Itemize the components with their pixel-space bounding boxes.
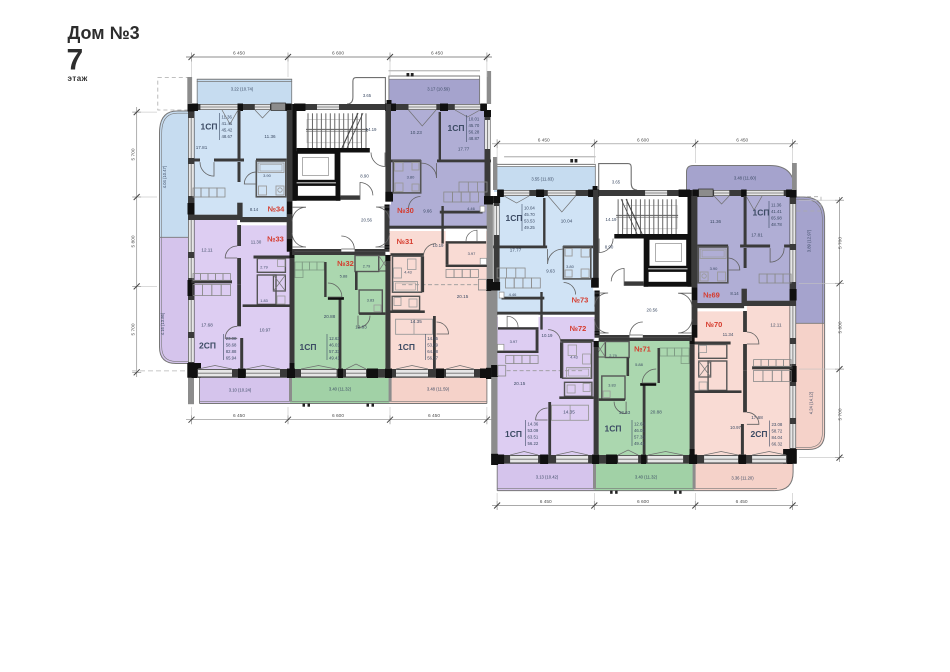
svg-text:10.97: 10.97	[260, 328, 272, 333]
svg-text:№71: №71	[634, 345, 651, 354]
svg-text:10.97: 10.97	[730, 425, 742, 430]
svg-text:10.19: 10.19	[433, 243, 445, 248]
svg-text:6 450: 6 450	[736, 137, 748, 143]
svg-text:5.88: 5.88	[635, 362, 644, 367]
svg-text:4.24 (14.12): 4.24 (14.12)	[809, 391, 814, 414]
svg-text:4.16 (13.86): 4.16 (13.86)	[160, 312, 165, 335]
svg-text:17.68: 17.68	[751, 415, 763, 420]
svg-text:10.19: 10.19	[542, 333, 554, 338]
svg-text:14.19: 14.19	[606, 217, 618, 222]
svg-text:№69: №69	[703, 291, 720, 300]
svg-text:17.77: 17.77	[458, 147, 470, 152]
svg-text:2СП: 2СП	[751, 429, 768, 439]
svg-text:10.01: 10.01	[469, 117, 480, 122]
svg-text:1СП: 1СП	[300, 342, 317, 352]
svg-text:2.79: 2.79	[363, 265, 370, 269]
svg-text:48.87: 48.87	[469, 136, 480, 141]
svg-text:6 600: 6 600	[332, 51, 344, 57]
svg-text:3.40 (11.32): 3.40 (11.32)	[329, 387, 352, 392]
svg-text:49.41: 49.41	[329, 356, 340, 361]
svg-text:3.10 (10.24): 3.10 (10.24)	[229, 388, 252, 393]
svg-text:12.63: 12.63	[355, 325, 367, 330]
svg-text:3.17 (10.59): 3.17 (10.59)	[427, 87, 450, 92]
svg-text:8.90: 8.90	[360, 174, 369, 179]
svg-text:6 450: 6 450	[736, 499, 748, 505]
svg-text:6 450: 6 450	[540, 499, 552, 505]
svg-text:12.63: 12.63	[619, 410, 631, 415]
svg-text:7: 7	[67, 44, 84, 77]
svg-text:2.79: 2.79	[260, 266, 267, 270]
svg-text:1СП: 1СП	[505, 429, 522, 439]
svg-text:№31: №31	[397, 237, 414, 246]
svg-text:3.80: 3.80	[566, 264, 575, 269]
svg-text:41.41: 41.41	[222, 121, 233, 126]
svg-text:65.94: 65.94	[226, 356, 237, 361]
svg-text:№30: №30	[397, 206, 414, 215]
svg-text:этаж: этаж	[68, 74, 88, 83]
svg-text:№73: №73	[572, 296, 589, 305]
svg-text:3.83: 3.83	[608, 384, 615, 388]
svg-text:11.36: 11.36	[771, 203, 782, 208]
svg-text:56.28: 56.28	[469, 130, 480, 135]
svg-text:Дом №3: Дом №3	[68, 23, 140, 43]
svg-text:8.14: 8.14	[250, 207, 259, 212]
svg-text:17.68: 17.68	[201, 323, 213, 328]
svg-text:23.08: 23.08	[226, 336, 237, 341]
svg-text:1СП: 1СП	[448, 123, 465, 133]
svg-text:6 450: 6 450	[428, 413, 440, 419]
svg-text:9.66: 9.66	[423, 209, 432, 214]
svg-text:№33: №33	[267, 235, 284, 244]
svg-text:1СП: 1СП	[605, 424, 622, 434]
svg-text:45.70: 45.70	[469, 123, 480, 128]
svg-text:6 450: 6 450	[233, 413, 245, 419]
svg-text:2СП: 2СП	[199, 341, 216, 351]
svg-text:14.35: 14.35	[427, 336, 438, 341]
svg-text:3.65: 3.65	[363, 93, 372, 98]
svg-text:17.81: 17.81	[751, 233, 763, 238]
svg-text:4.46: 4.46	[509, 292, 518, 297]
svg-text:4.43: 4.43	[404, 271, 411, 275]
svg-text:№34: №34	[268, 205, 286, 214]
svg-text:3.90: 3.90	[710, 266, 719, 271]
svg-text:56.57: 56.57	[427, 356, 438, 361]
svg-text:53.53: 53.53	[524, 219, 535, 224]
svg-text:14.35: 14.35	[563, 410, 575, 415]
svg-text:3.65: 3.65	[612, 180, 621, 185]
svg-text:1СП: 1СП	[201, 122, 218, 132]
svg-text:23.08: 23.08	[772, 422, 783, 427]
svg-text:49.25: 49.25	[524, 225, 535, 230]
svg-text:58.68: 58.68	[226, 343, 237, 348]
svg-text:8.90: 8.90	[605, 245, 614, 250]
svg-text:6 600: 6 600	[637, 137, 649, 143]
svg-text:20.15: 20.15	[457, 294, 469, 299]
svg-text:9.63: 9.63	[546, 269, 555, 274]
svg-text:3.48 (11.60): 3.48 (11.60)	[734, 176, 757, 181]
svg-text:3.55 (11.83): 3.55 (11.83)	[531, 177, 554, 182]
svg-text:12.11: 12.11	[770, 323, 782, 328]
svg-text:4.43: 4.43	[570, 356, 577, 360]
svg-text:45.70: 45.70	[524, 212, 535, 217]
svg-text:48.78: 48.78	[771, 222, 782, 227]
svg-text:56.22: 56.22	[528, 441, 539, 446]
svg-text:53.09: 53.09	[427, 343, 438, 348]
svg-text:3.90: 3.90	[263, 173, 272, 178]
svg-text:№32: №32	[337, 259, 354, 268]
svg-text:2.79: 2.79	[609, 354, 616, 358]
svg-text:5 700: 5 700	[838, 408, 844, 420]
svg-text:4.46: 4.46	[467, 206, 476, 211]
svg-text:64.68: 64.68	[427, 349, 438, 354]
svg-text:49.41: 49.41	[634, 441, 645, 446]
svg-text:11.36: 11.36	[222, 115, 233, 120]
svg-text:6 600: 6 600	[637, 499, 649, 505]
svg-text:1СП: 1СП	[506, 213, 523, 223]
svg-text:3.13 (10.42): 3.13 (10.42)	[536, 475, 559, 480]
svg-text:3.97: 3.97	[468, 251, 477, 256]
svg-text:14.19: 14.19	[366, 127, 378, 132]
svg-text:82.88: 82.88	[226, 349, 237, 354]
svg-text:20.56: 20.56	[647, 308, 659, 313]
svg-text:6 450: 6 450	[538, 137, 550, 143]
svg-text:12.63: 12.63	[329, 336, 340, 341]
svg-text:53.09: 53.09	[528, 428, 539, 433]
svg-text:11.30: 11.30	[251, 240, 262, 245]
svg-text:84.04: 84.04	[772, 435, 783, 440]
svg-text:5 700: 5 700	[131, 148, 137, 160]
svg-text:3.97: 3.97	[510, 339, 519, 344]
svg-text:65.98: 65.98	[771, 216, 782, 221]
svg-text:5 700: 5 700	[838, 237, 844, 249]
svg-text:4.04 (10.47): 4.04 (10.47)	[162, 165, 167, 188]
svg-text:1.83: 1.83	[260, 299, 267, 303]
svg-text:10.04: 10.04	[524, 206, 535, 211]
svg-text:58.72: 58.72	[772, 429, 783, 434]
svg-text:14.35: 14.35	[410, 319, 422, 324]
svg-text:5 700: 5 700	[131, 323, 137, 335]
svg-text:10.04: 10.04	[561, 219, 573, 224]
svg-text:№72: №72	[570, 324, 587, 333]
svg-text:11.36: 11.36	[264, 134, 276, 139]
svg-text:17.77: 17.77	[510, 248, 522, 253]
svg-text:№70: №70	[706, 320, 723, 329]
svg-text:8.14: 8.14	[730, 291, 739, 296]
svg-text:14.36: 14.36	[528, 422, 539, 427]
svg-text:66.32: 66.32	[772, 442, 783, 447]
svg-text:20.15: 20.15	[514, 381, 526, 386]
svg-text:20.56: 20.56	[361, 218, 373, 223]
svg-text:10.23: 10.23	[410, 130, 422, 135]
svg-text:5 800: 5 800	[838, 321, 844, 333]
svg-text:20.88: 20.88	[324, 314, 336, 319]
svg-text:45.42: 45.42	[222, 128, 233, 133]
svg-text:5 800: 5 800	[131, 235, 137, 247]
svg-text:1СП: 1СП	[753, 208, 770, 218]
svg-text:17.81: 17.81	[196, 145, 208, 150]
svg-text:3.83: 3.83	[367, 299, 374, 303]
svg-text:3.36 (11.20): 3.36 (11.20)	[731, 476, 754, 481]
svg-text:3.22 (10.74): 3.22 (10.74)	[231, 87, 254, 92]
svg-text:46.01: 46.01	[634, 428, 645, 433]
svg-text:3.89 (12.97): 3.89 (12.97)	[807, 229, 812, 252]
svg-text:11.36: 11.36	[710, 219, 722, 224]
svg-text:48.67: 48.67	[222, 134, 233, 139]
svg-text:11.34: 11.34	[723, 332, 734, 337]
svg-text:1СП: 1СП	[398, 342, 415, 352]
svg-text:57.33: 57.33	[329, 349, 340, 354]
svg-text:6 450: 6 450	[431, 51, 443, 57]
svg-text:20.88: 20.88	[650, 410, 662, 415]
svg-text:41.41: 41.41	[771, 209, 782, 214]
svg-text:6 600: 6 600	[332, 413, 344, 419]
svg-text:3.80: 3.80	[407, 175, 416, 180]
svg-text:6 450: 6 450	[233, 51, 245, 57]
svg-text:3.48 (11.59): 3.48 (11.59)	[427, 387, 450, 392]
svg-text:12.11: 12.11	[201, 248, 213, 253]
svg-text:3.40 (11.32): 3.40 (11.32)	[635, 475, 658, 480]
svg-text:63.51: 63.51	[528, 435, 539, 440]
svg-text:46.01: 46.01	[329, 343, 340, 348]
svg-text:12.63: 12.63	[634, 422, 645, 427]
svg-text:5.88: 5.88	[340, 274, 349, 279]
svg-text:57.33: 57.33	[634, 435, 645, 440]
